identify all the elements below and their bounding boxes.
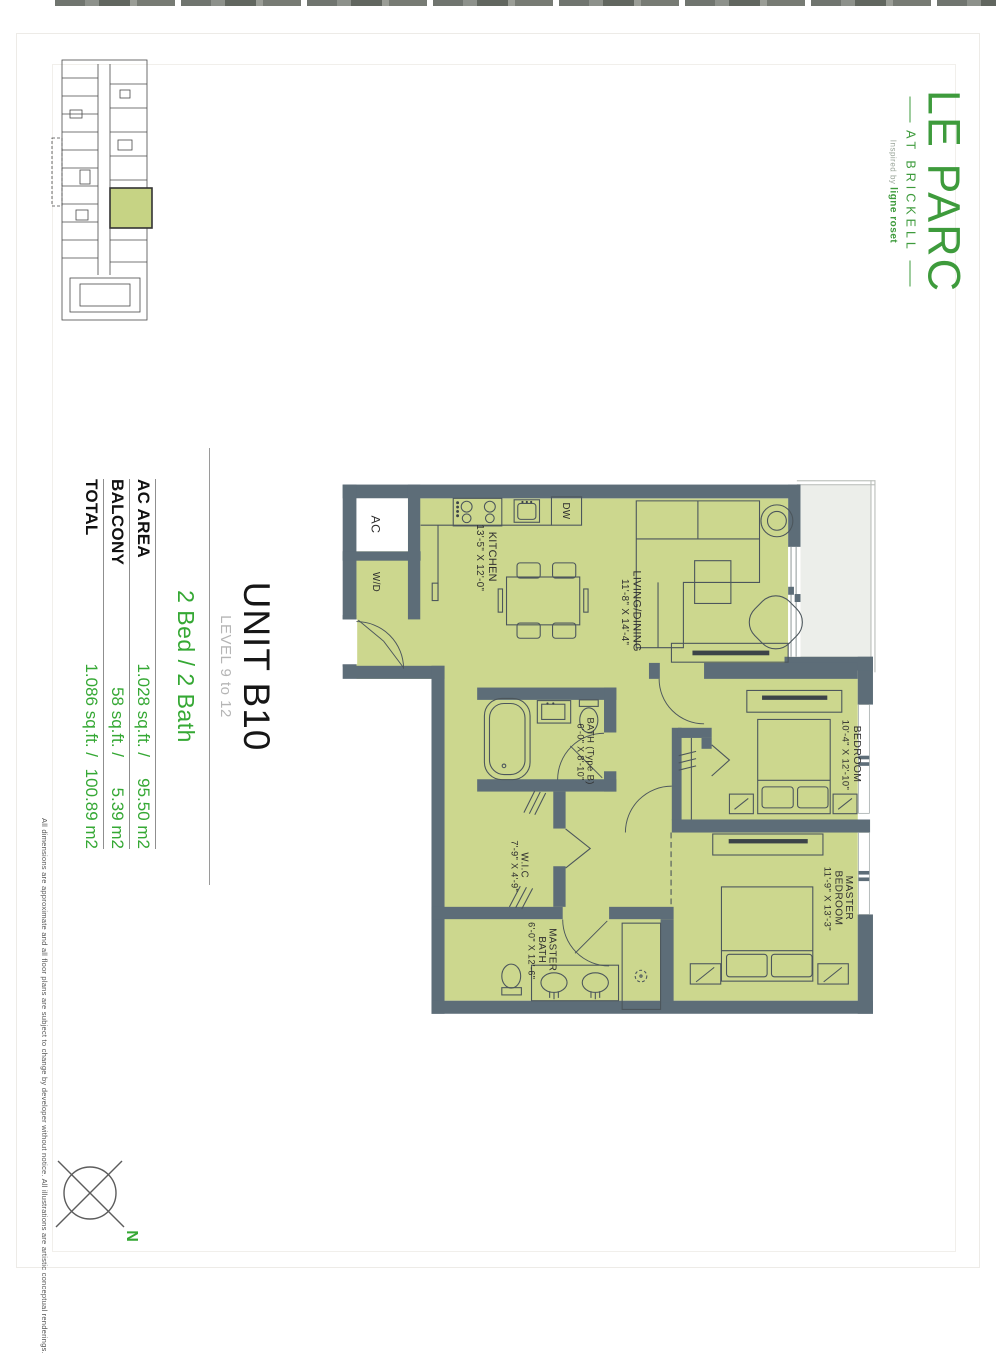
master-window (858, 833, 869, 915)
scan-artifact-strip (55, 0, 996, 6)
area-metric: 95.50 m2 (133, 757, 153, 849)
area-label: TOTAL (81, 479, 101, 639)
area-metric: 100.89 m2 (81, 757, 101, 849)
disclaimer-text: All dimensions are approximate and all f… (35, 818, 49, 1248)
logo-dash-left (910, 96, 911, 122)
key-plan (40, 50, 220, 340)
unit-title: UNIT B10 (238, 448, 275, 885)
entry-jamb-top (343, 615, 357, 619)
label-bedroom: BEDROOM 10'-4" X 12'-10" (841, 720, 864, 790)
brand-logo: LE PARC AT BRICKELL Inspired by ligne ro… (872, 77, 967, 307)
area-imperial: 58 sq.ft. / (107, 639, 127, 757)
label-living: LIVING/DINING 11'-8" X 14'-4" (619, 571, 643, 654)
area-metric: 5.39 m2 (107, 757, 127, 849)
area-table: AC AREA 1.028 sq.ft. / 95.50 m2 BALCONY … (78, 479, 156, 849)
key-plan-unit-highlight (110, 188, 152, 228)
title-rule (209, 448, 210, 885)
tv-bar-living (692, 651, 769, 656)
brand-name: LE PARC (922, 77, 967, 307)
balcony-area (800, 485, 870, 656)
label-wd: W/D (370, 572, 381, 592)
area-row-total: TOTAL 1.086 sq.ft. / 100.89 m2 (78, 479, 104, 849)
label-kitchen: KITCHEN 13'-5" X 12'-0" (474, 524, 498, 591)
tagline-prefix: Inspired by (889, 140, 898, 185)
area-row-ac: AC AREA 1.028 sq.ft. / 95.50 m2 (130, 479, 156, 849)
area-imperial: 1.028 sq.ft. / (133, 639, 153, 757)
entry-jamb-bottom (343, 664, 357, 666)
tagline-brand: ligne roset (888, 187, 899, 243)
label-ac: AC (368, 516, 382, 534)
compass-rose (56, 1161, 124, 1227)
brand-subtitle-row: AT BRICKELL (904, 77, 918, 307)
area-imperial: 1.086 sq.ft. / (81, 639, 101, 757)
unit-config: 2 Bed / 2 Bath (172, 448, 199, 885)
unit-level: LEVEL 9 to 12 (217, 448, 234, 885)
area-row-balcony: BALCONY 58 sq.ft. / 5.39 m2 (104, 479, 130, 849)
area-label: AC AREA (133, 479, 153, 639)
floorplan-drawing: KITCHEN 13'-5" X 12'-0" LIVING/DINING 11… (330, 470, 890, 1020)
logo-dash-right (910, 261, 911, 287)
floorplan-page: { "logo": { "name": "LE PARC", "subtitle… (0, 0, 996, 1289)
tv-bar-bedroom (762, 696, 827, 700)
north-label: N (123, 1230, 140, 1242)
entry-opening (342, 619, 357, 664)
label-bath: BATH (Type B) 6'-0" X 8'-10" (576, 717, 597, 786)
label-dw: DW (560, 503, 571, 520)
unit-info-block: UNIT B10 LEVEL 9 to 12 2 Bed / 2 Bath AC… (80, 448, 275, 885)
label-master-bedroom: MASTER BEDROOM 11'-9" X 13'-3" (822, 867, 854, 931)
compass: N (46, 1146, 156, 1251)
tv-bar-master (729, 839, 808, 843)
brand-tagline: Inspired by ligne roset (888, 77, 899, 307)
area-label: BALCONY (107, 479, 127, 639)
brand-subtitle: AT BRICKELL (904, 130, 918, 253)
